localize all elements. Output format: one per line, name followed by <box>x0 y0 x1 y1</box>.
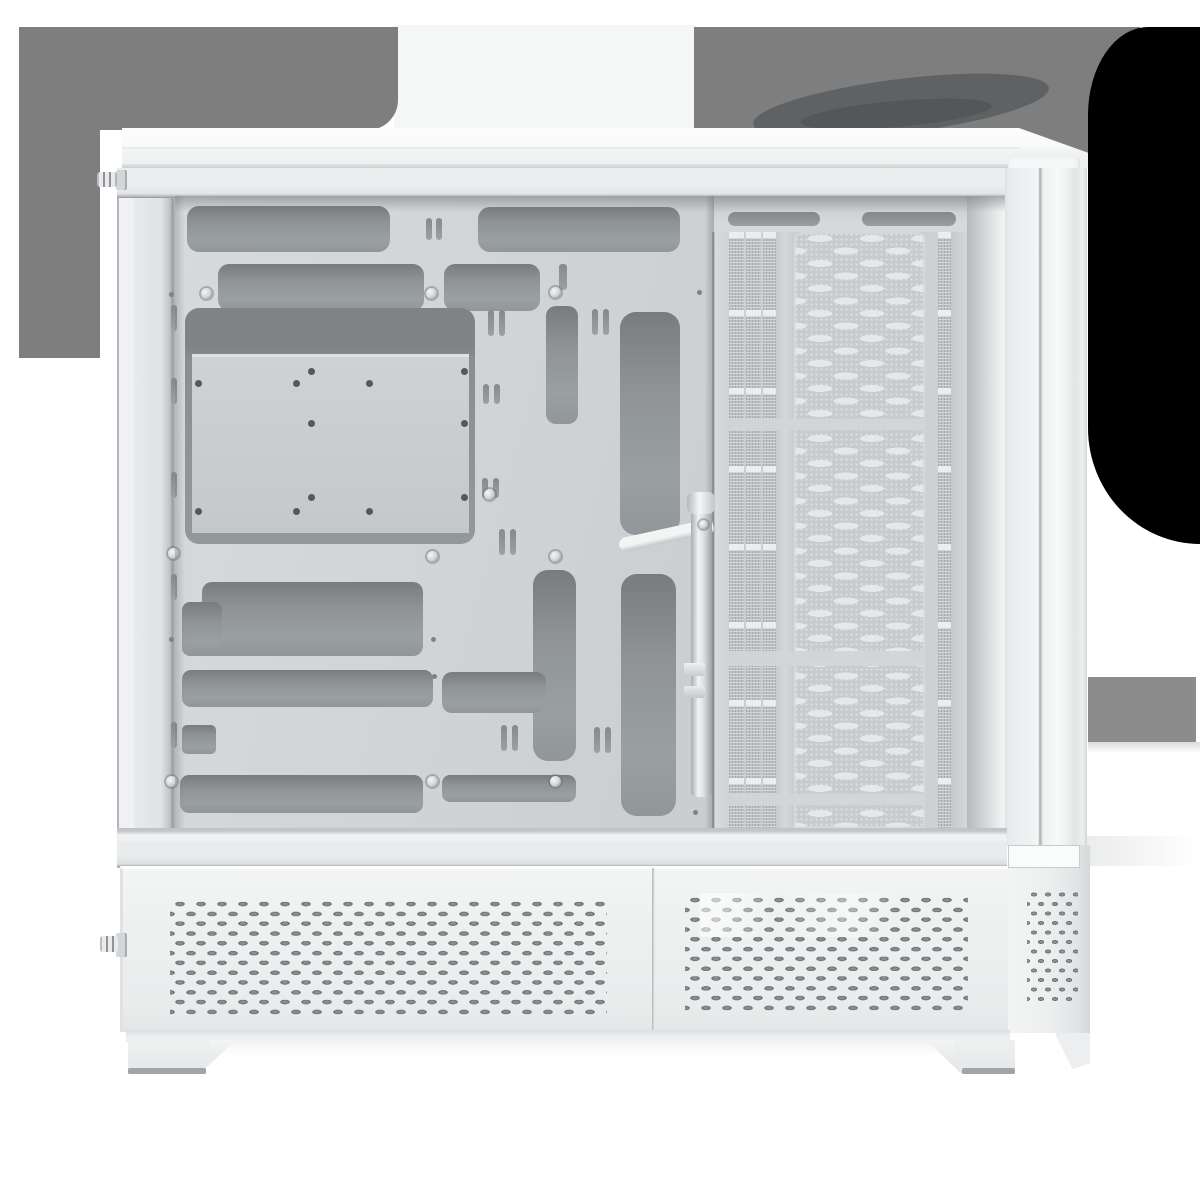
screw <box>550 551 561 562</box>
chassis-sill <box>117 828 1007 868</box>
tie-slot <box>592 309 598 335</box>
tie-slot <box>512 725 518 751</box>
backdrop-shadow-left-strip <box>19 27 100 358</box>
screw <box>550 287 561 298</box>
cable-cutout <box>478 207 680 252</box>
mesh-rail <box>925 232 938 828</box>
screw <box>550 776 561 787</box>
foot-pad <box>962 1068 1015 1074</box>
rivet <box>169 637 174 642</box>
standoff-hole <box>293 380 300 387</box>
tie-slot <box>594 727 600 753</box>
thumbscrew-top <box>97 172 117 187</box>
tie-slot <box>501 725 507 751</box>
tie-slot <box>488 310 494 336</box>
perforated-strip <box>763 232 776 828</box>
cable-cutout-vertical <box>546 306 578 424</box>
standoff-hole <box>461 494 468 501</box>
backdrop-gray-card <box>1088 677 1196 742</box>
tie-slot <box>436 218 442 240</box>
mesh-rail <box>951 232 967 828</box>
perforated-strip <box>729 232 744 828</box>
backdrop-black-shadow <box>1088 27 1200 544</box>
mesh-brick-panel <box>794 232 925 828</box>
rivet <box>432 674 437 679</box>
gpu-bracket-clamp <box>684 663 705 676</box>
rivet <box>431 637 436 642</box>
mesh-frame-slot <box>728 212 820 226</box>
tie-slot <box>426 218 432 240</box>
vent-reflection <box>700 893 960 937</box>
gpu-bracket-rail-cap <box>687 492 715 514</box>
gpu-bracket-rail <box>691 505 712 797</box>
tie-slot <box>499 310 505 336</box>
standoff-hole <box>308 420 315 427</box>
cable-cutout <box>182 670 433 707</box>
standoff-hole <box>195 380 202 387</box>
rivet <box>697 290 702 295</box>
tie-slot <box>603 309 609 335</box>
standoff-hole <box>308 368 315 375</box>
mesh-section-divider <box>729 419 925 430</box>
cable-cutout <box>202 582 423 656</box>
screw <box>201 288 212 299</box>
perforated-strip <box>938 232 951 828</box>
vent-grille-front <box>1027 890 1078 1004</box>
cable-cutout-tall <box>620 312 680 535</box>
cable-cutout <box>187 206 390 252</box>
cable-cutout-tall <box>621 574 676 816</box>
cable-cutout <box>180 775 423 813</box>
mesh-section-divider <box>729 794 925 805</box>
backdrop-ledge-shadow <box>1078 836 1198 866</box>
screw <box>484 489 495 500</box>
screw <box>427 776 438 787</box>
tie-slot <box>605 727 611 753</box>
tie-slot <box>494 384 500 404</box>
vent-grille-left <box>170 899 607 1016</box>
tie-slot <box>483 384 489 404</box>
cable-cutout-small <box>182 725 216 754</box>
thumbscrew-mount-top <box>116 170 127 190</box>
rivet <box>169 292 174 297</box>
backdrop-light-column <box>394 25 696 132</box>
standoff-hole <box>461 368 468 375</box>
cable-cutout <box>218 264 424 311</box>
front-panel-edge <box>1005 168 1087 846</box>
cable-cutout-t-arm <box>442 672 546 713</box>
screw <box>426 288 437 299</box>
tie-slot <box>559 264 567 290</box>
thumbscrew-bottom <box>100 936 118 952</box>
underside-shadow <box>210 1040 955 1056</box>
backdrop-gray-card-shadow <box>1088 742 1200 753</box>
cable-cutout-t-stem <box>533 570 576 761</box>
rivet <box>693 810 698 815</box>
mesh-rail <box>712 232 729 828</box>
standoff-hole <box>461 420 468 427</box>
standoff-hole <box>293 508 300 515</box>
standoff-hole <box>308 494 315 501</box>
case-foot-front-edge <box>1056 1033 1090 1069</box>
foot-pad <box>128 1068 206 1074</box>
top-panel-seam <box>122 147 1019 149</box>
tie-slot <box>499 529 505 555</box>
standoff-hole <box>366 508 373 515</box>
cable-cutout <box>444 264 540 311</box>
standoff-hole <box>366 380 373 387</box>
cable-cutout-notch <box>182 602 222 656</box>
perforated-strip <box>746 232 761 828</box>
shroud-seam <box>652 868 655 1030</box>
rear-edge-rim <box>117 168 177 836</box>
mesh-section-divider <box>729 651 925 666</box>
motherboard-backplate <box>192 357 469 533</box>
screw <box>427 551 438 562</box>
mesh-rail <box>776 232 794 828</box>
standoff-hole <box>195 508 202 515</box>
tie-slot <box>510 529 516 555</box>
mesh-frame-slot <box>862 212 956 226</box>
front-edge-shading <box>967 196 1007 846</box>
gpu-bracket-screw <box>699 520 708 529</box>
gpu-bracket-clamp <box>684 686 705 698</box>
product-photo-pc-case <box>0 0 1200 1200</box>
recess-shadow <box>175 196 185 832</box>
cpu-backplate-window <box>185 308 475 544</box>
recess-shadow <box>175 196 1007 212</box>
panel-frame-top <box>117 168 1007 198</box>
front-bottom-ledge <box>1008 845 1080 868</box>
